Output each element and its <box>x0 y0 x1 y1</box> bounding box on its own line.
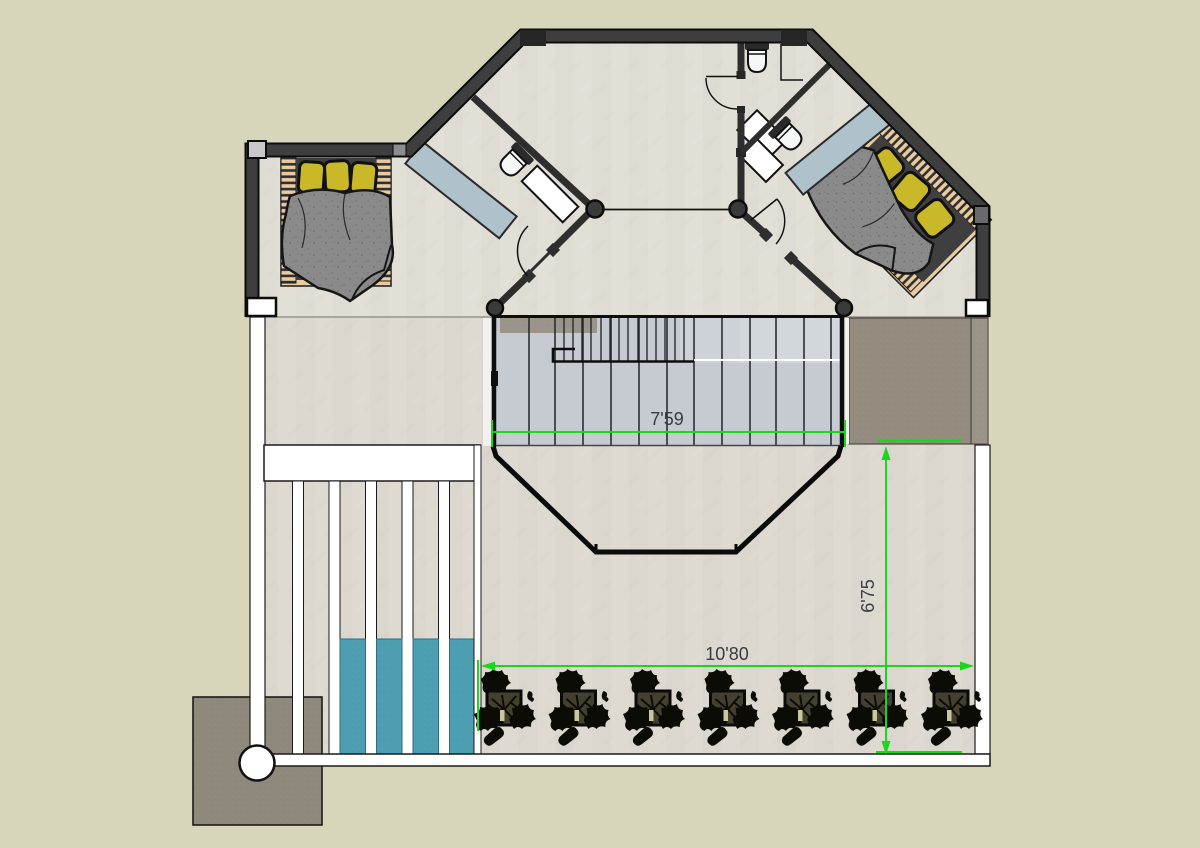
svg-text:7'59: 7'59 <box>650 409 683 429</box>
svg-text:10'80: 10'80 <box>705 644 748 664</box>
svg-text:6'75: 6'75 <box>858 579 878 612</box>
